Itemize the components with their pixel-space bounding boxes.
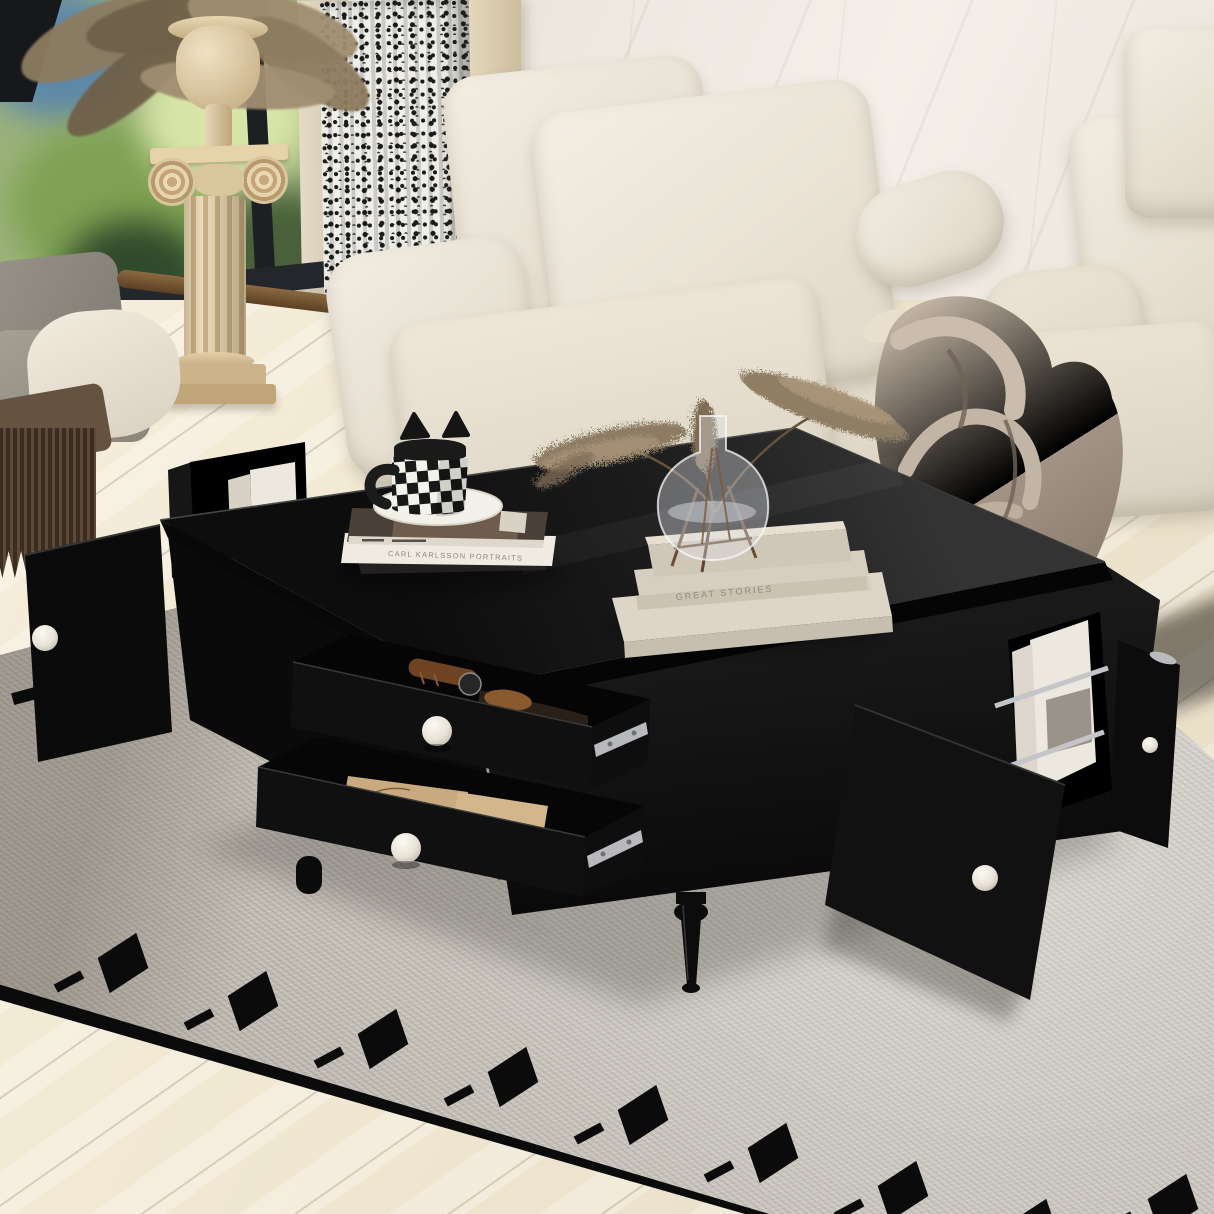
right-end-door-knob [1142, 737, 1158, 753]
knob-shadow [392, 861, 420, 869]
slide-screw [608, 742, 613, 747]
front-right-door-knob [972, 865, 998, 891]
checkered-mug [370, 413, 468, 516]
slide-screw [632, 731, 637, 736]
slide-screw [601, 852, 606, 857]
drawer-lower-knob [391, 833, 421, 863]
magazine-title-block [499, 511, 527, 534]
cat-ear-right [444, 413, 468, 436]
magazine-spine-dash [392, 540, 426, 543]
drawer-upper-knob [422, 716, 452, 746]
cat-ear-left [402, 414, 428, 438]
magazine-spine-dash [362, 539, 384, 542]
knob-shadow [423, 744, 451, 752]
slide-screw [627, 840, 632, 845]
coffee-table-scene: CARL KARLSSON PORTRAITS GR [0, 0, 1214, 1214]
mug-shading [436, 456, 468, 516]
left-door-knob [32, 625, 58, 651]
watch-face [459, 673, 481, 695]
vase-water [668, 501, 756, 523]
mug-lid [394, 439, 466, 461]
living-room-scene: CARL KARLSSON PORTRAITS GR [0, 0, 1214, 1214]
table-foot [296, 856, 322, 894]
